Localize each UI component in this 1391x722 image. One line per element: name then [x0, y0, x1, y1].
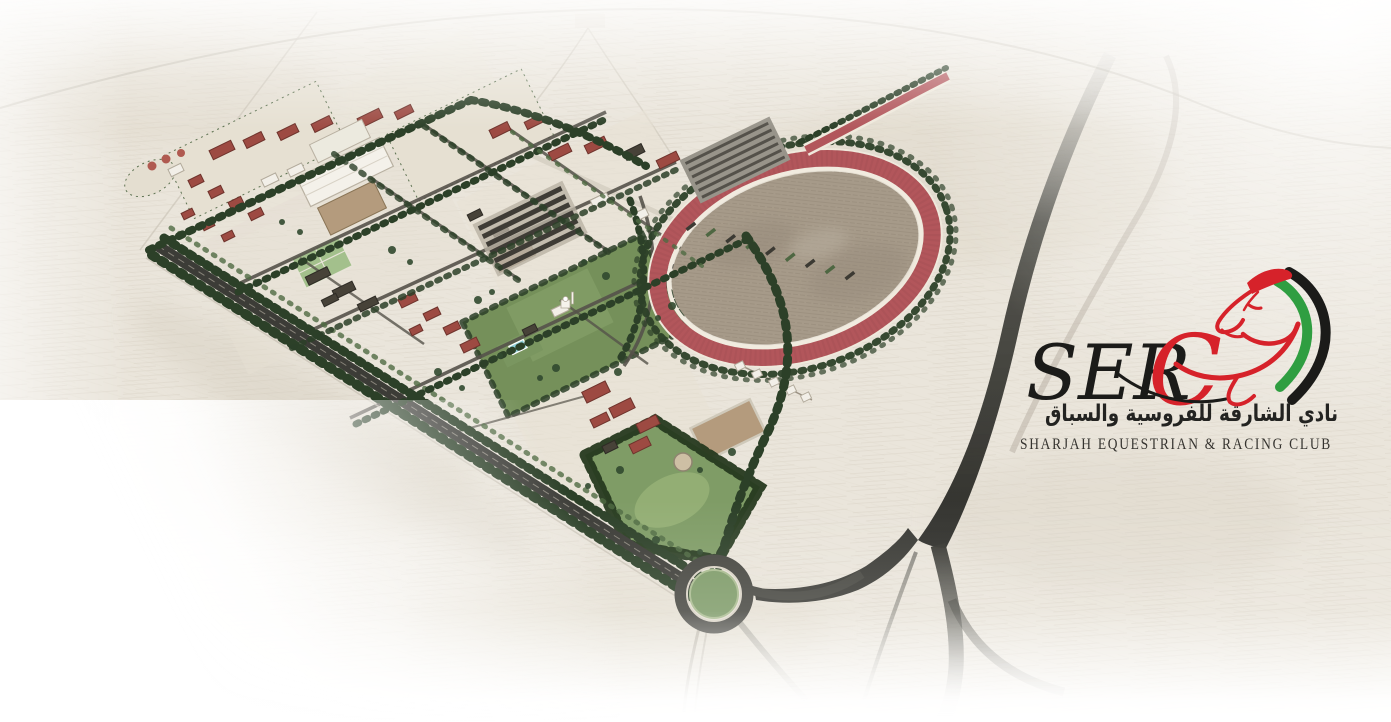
round-tent [177, 149, 185, 157]
tree [581, 259, 587, 265]
tree [279, 219, 285, 225]
tree [537, 375, 543, 381]
tree [614, 368, 622, 376]
tree [407, 259, 413, 265]
round-tent [148, 162, 157, 171]
tree [668, 302, 676, 310]
tree [497, 353, 503, 359]
tree [728, 448, 736, 456]
tree [297, 229, 303, 235]
tree [602, 272, 610, 280]
arabic-club-name: نادي الشارقة للفروسية والسباق [1045, 401, 1338, 427]
tree [388, 246, 396, 254]
tree [434, 368, 442, 376]
round-tent [162, 155, 171, 164]
master-plan-rendering: SER C نادي الشارقة للفروسية والسباق SHAR… [0, 0, 1391, 722]
tree [552, 364, 560, 372]
english-club-name: SHARJAH EQUESTRIAN & RACING CLUB [1020, 436, 1332, 453]
tree [655, 315, 661, 321]
tree [459, 385, 465, 391]
tree [489, 289, 495, 295]
park-plaza [674, 453, 692, 471]
site-plan-rendering: SER C نادي الشارقة للفروسية والسباق SHAR… [0, 0, 1391, 722]
tree [474, 296, 482, 304]
